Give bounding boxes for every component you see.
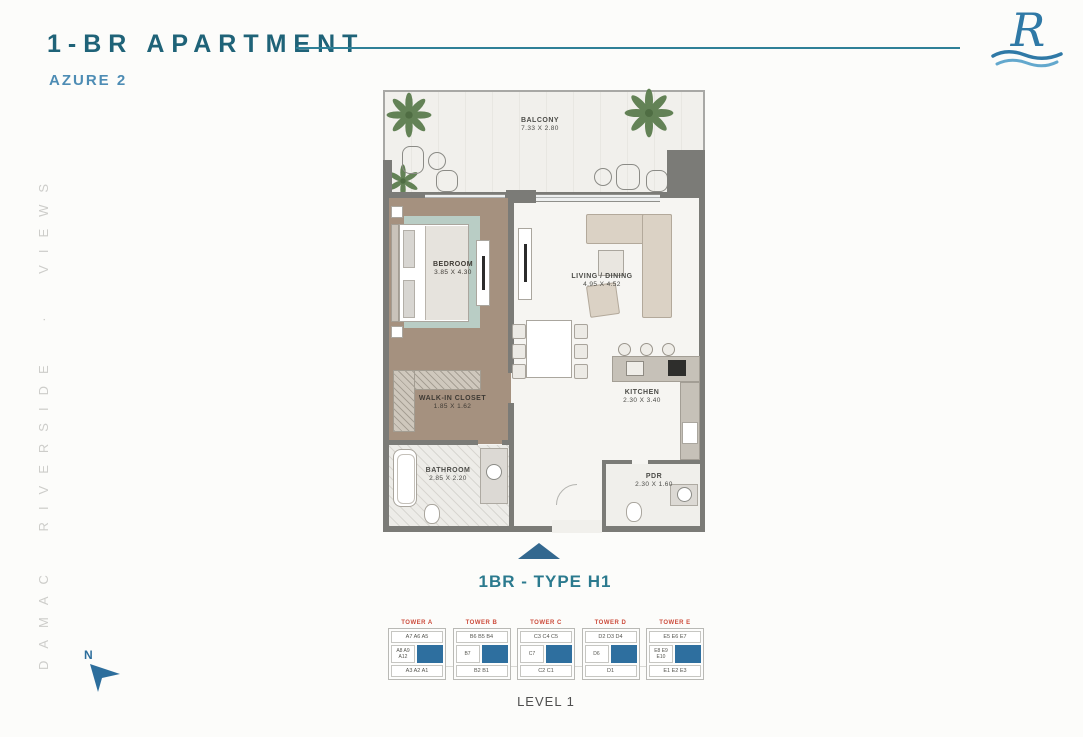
room-label-bathroom: BATHROOM 2.85 X 2.20 <box>408 466 488 484</box>
lounge-chair <box>436 170 458 192</box>
fridge <box>682 422 698 444</box>
highlighted-unit <box>546 645 572 663</box>
room-label-living: LIVING / DINING 4.95 X 4.52 <box>554 272 650 290</box>
north-compass: N <box>80 648 130 704</box>
bed-pillow <box>403 280 415 318</box>
sink <box>486 464 502 480</box>
level-label: LEVEL 1 <box>388 694 704 709</box>
wall-segment <box>508 403 514 444</box>
wall-segment <box>383 160 392 192</box>
keyplan-tower-e: TOWER E E5 E6 E7 E8 E9 E10 E1 E2 E3 <box>646 620 704 680</box>
title-divider <box>296 47 960 49</box>
logo-letter: R <box>978 6 1078 54</box>
highlighted-unit <box>611 645 637 663</box>
tv-screen <box>524 244 527 282</box>
keyplan-tower-a: TOWER A A7 A6 A5 A8 A9 A12 A3 A2 A1 <box>388 620 446 680</box>
vertical-watermark: DAMAC RIVERSIDE · VIEWS <box>36 150 51 670</box>
tower-diagram: A7 A6 A5 A8 A9 A12 A3 A2 A1 <box>388 628 446 680</box>
sofa <box>642 214 672 318</box>
wall-segment <box>509 445 514 532</box>
highlighted-unit <box>675 645 701 663</box>
keyplan-tower-c: TOWER C C3 C4 C5 C7 C2 C1 <box>517 620 575 680</box>
nightstand <box>391 206 403 218</box>
wall-segment <box>667 150 705 192</box>
brochure-page: 1-BR APARTMENT AZURE 2 R DAMAC RIVERSIDE… <box>0 0 1083 737</box>
key-plan: TOWER A A7 A6 A5 A8 A9 A12 A3 A2 A1 TOWE… <box>388 620 704 715</box>
keyplan-towers: TOWER A A7 A6 A5 A8 A9 A12 A3 A2 A1 TOWE… <box>388 620 704 680</box>
lounge-chair <box>402 146 424 174</box>
palm-plant-icon <box>624 88 674 138</box>
balcony-table <box>594 168 612 186</box>
entrance-arrow-icon <box>518 543 560 559</box>
keyplan-tower-d: TOWER D D2 D3 D4 D6 D1 <box>582 620 640 680</box>
room-label-kitchen: KITCHEN 2.30 X 3.40 <box>606 388 678 406</box>
room-label-closet: WALK-IN CLOSET 1.85 X 1.62 <box>410 394 495 412</box>
bar-stool <box>618 343 631 356</box>
keyplan-tower-b: TOWER B B6 B5 B4 B7 B2 B1 <box>453 620 511 680</box>
kitchen-sink <box>626 361 644 376</box>
compass-n-label: N <box>84 648 93 662</box>
lounge-chair <box>646 170 668 192</box>
tower-diagram: D2 D3 D4 D6 D1 <box>582 628 640 680</box>
room-label-balcony: BALCONY 7.33 X 2.80 <box>480 116 600 134</box>
highlighted-unit <box>482 645 508 663</box>
bar-stool <box>640 343 653 356</box>
dining-chair <box>512 344 526 359</box>
balcony-table <box>428 152 446 170</box>
page-title: 1-BR APARTMENT <box>47 30 364 59</box>
floor-plan: BALCONY 7.33 X 2.80 BEDROOM <box>380 88 708 538</box>
tower-diagram: E5 E6 E7 E8 E9 E10 E1 E2 E3 <box>646 628 704 680</box>
tower-diagram: C3 C4 C5 C7 C2 C1 <box>517 628 575 680</box>
dining-chair <box>512 324 526 339</box>
kitchen-counter <box>680 382 700 460</box>
dining-chair <box>574 364 588 379</box>
lounge-chair <box>616 164 640 190</box>
tower-diagram: B6 B5 B4 B7 B2 B1 <box>453 628 511 680</box>
brand-logo: R <box>978 6 1078 96</box>
room-label-bedroom: BEDROOM 3.85 X 4.30 <box>408 260 498 278</box>
dining-chair <box>574 324 588 339</box>
north-arrow-icon <box>86 662 126 698</box>
dining-table <box>526 320 572 378</box>
unit-type-label: 1BR - TYPE H1 <box>380 572 710 592</box>
bar-stool <box>662 343 675 356</box>
cooktop <box>668 360 686 376</box>
page-subtitle: AZURE 2 <box>49 72 127 89</box>
living-window <box>536 194 660 202</box>
highlighted-unit <box>417 645 443 663</box>
bed-headboard <box>391 224 399 322</box>
toilet <box>424 504 440 524</box>
toilet <box>626 502 642 522</box>
dining-chair <box>574 344 588 359</box>
dining-chair <box>512 364 526 379</box>
room-label-pdr: PDR 2.30 X 1.60 <box>618 472 690 490</box>
nightstand <box>391 326 403 338</box>
entry-opening <box>552 520 602 533</box>
palm-plant-icon <box>386 92 432 138</box>
